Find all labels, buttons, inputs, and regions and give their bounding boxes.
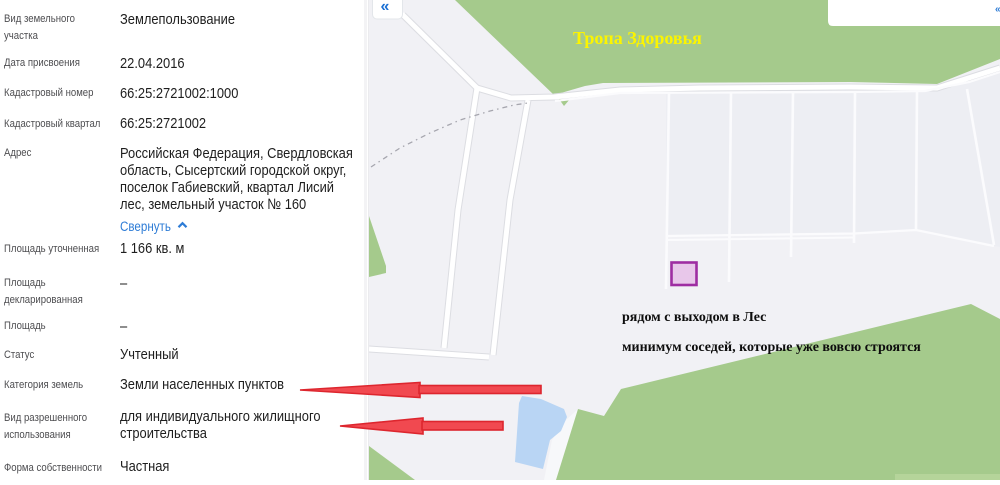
svg-text:минимум соседей, которые уже в: минимум соседей, которые уже вовсю строя… bbox=[622, 340, 921, 355]
svg-text:«: « bbox=[995, 4, 1000, 15]
svg-text:рядом с выходом в Лес: рядом с выходом в Лес bbox=[622, 310, 766, 325]
svg-text:«: « bbox=[381, 0, 390, 15]
svg-text:Тропа Здоровья: Тропа Здоровья bbox=[573, 28, 702, 48]
